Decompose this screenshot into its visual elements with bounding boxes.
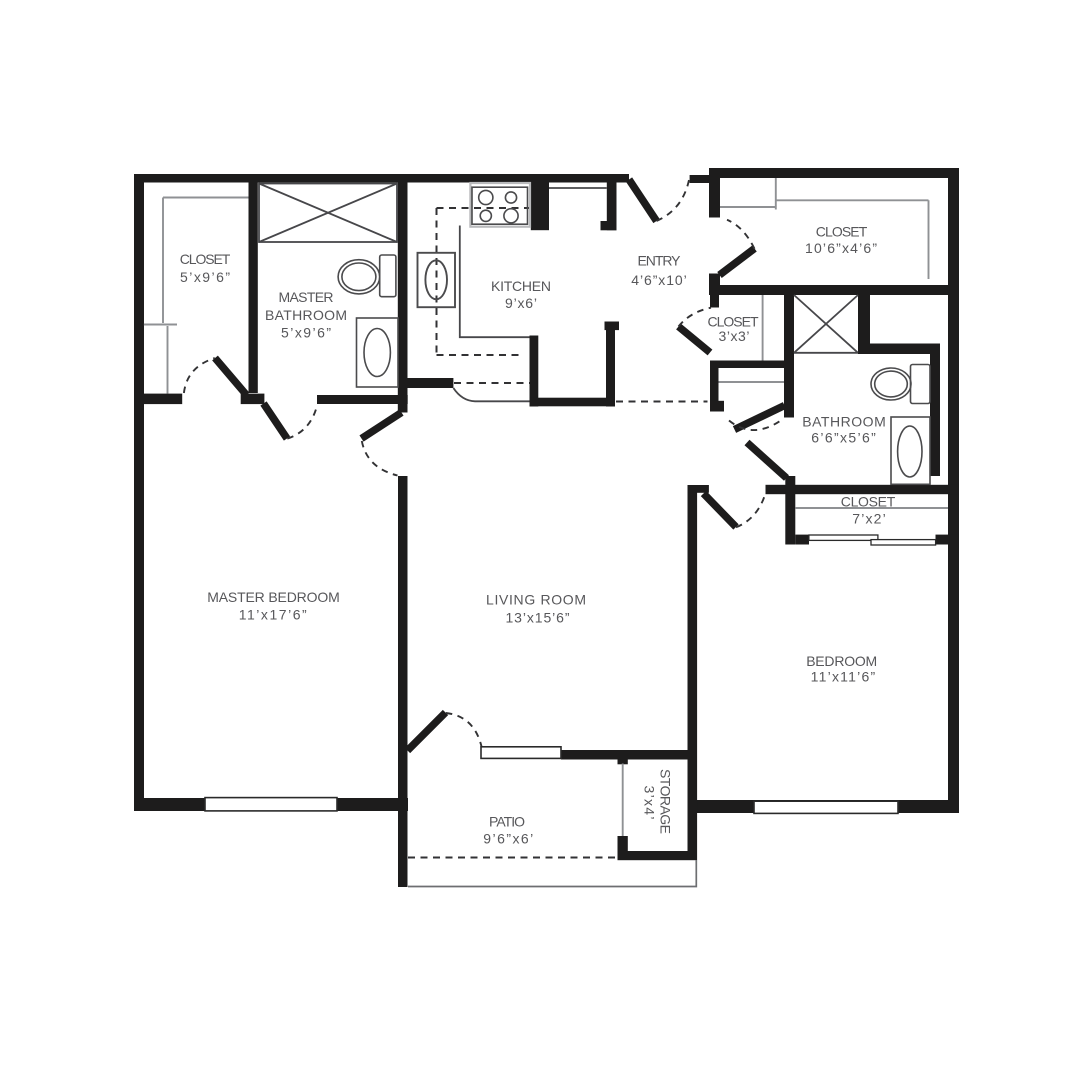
- svg-text:11’x17’6”: 11’x17’6”: [239, 607, 307, 623]
- svg-text:9’6”x6’: 9’6”x6’: [483, 831, 533, 847]
- svg-text:CLOSET: CLOSET: [180, 251, 231, 267]
- svg-text:3’x3’: 3’x3’: [719, 328, 750, 344]
- svg-text:MASTER BEDROOM: MASTER BEDROOM: [207, 589, 340, 605]
- svg-text:10’6”x4’6”: 10’6”x4’6”: [805, 240, 877, 256]
- svg-text:BEDROOM: BEDROOM: [806, 653, 877, 669]
- svg-text:5’x9’6”: 5’x9’6”: [180, 269, 230, 285]
- svg-text:PATIO: PATIO: [489, 814, 525, 830]
- svg-text:11’x11’6”: 11’x11’6”: [811, 669, 876, 685]
- svg-text:BATHROOM: BATHROOM: [265, 307, 347, 323]
- svg-text:13’x15’6”: 13’x15’6”: [506, 609, 570, 625]
- svg-text:6’6”x5’6”: 6’6”x5’6”: [811, 429, 876, 445]
- svg-text:7’x2’: 7’x2’: [852, 510, 886, 526]
- svg-text:KITCHEN: KITCHEN: [491, 278, 551, 294]
- svg-text:4’6”x10’: 4’6”x10’: [631, 272, 687, 288]
- svg-text:5’x9’6”: 5’x9’6”: [281, 325, 331, 341]
- svg-text:STORAGE: STORAGE: [658, 769, 674, 834]
- svg-text:ENTRY: ENTRY: [638, 253, 682, 269]
- svg-text:MASTER: MASTER: [279, 289, 334, 305]
- svg-text:3’x4’: 3’x4’: [642, 786, 658, 820]
- svg-text:LIVING ROOM: LIVING ROOM: [486, 592, 586, 608]
- svg-text:CLOSET: CLOSET: [841, 494, 896, 510]
- svg-text:CLOSET: CLOSET: [816, 224, 868, 240]
- svg-text:BATHROOM: BATHROOM: [802, 414, 886, 430]
- svg-text:9’x6’: 9’x6’: [505, 295, 537, 311]
